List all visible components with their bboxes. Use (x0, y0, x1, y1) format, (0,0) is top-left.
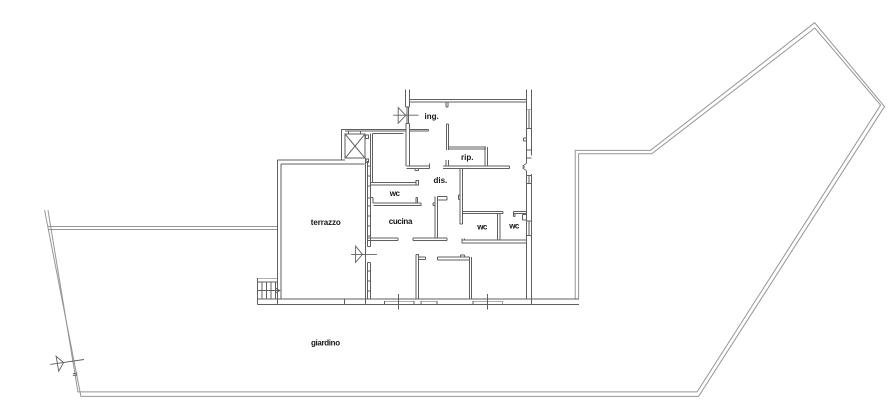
svg-text:wc: wc (476, 223, 488, 232)
svg-text:wc: wc (389, 189, 401, 198)
svg-text:giardino: giardino (311, 339, 340, 348)
svg-text:dis.: dis. (434, 176, 448, 185)
svg-text:terrazzo: terrazzo (311, 218, 341, 227)
svg-text:wc: wc (508, 221, 520, 230)
svg-text:cucina: cucina (389, 217, 413, 226)
svg-text:rip.: rip. (461, 153, 473, 162)
svg-text:ing.: ing. (425, 112, 439, 121)
